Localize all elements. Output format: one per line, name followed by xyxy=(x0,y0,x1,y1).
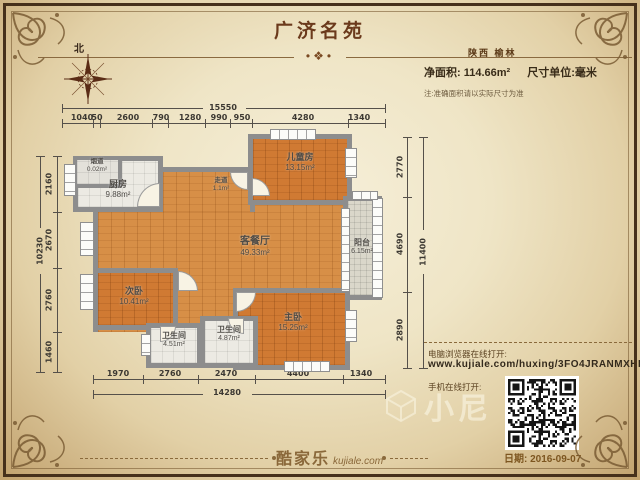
dim-tick xyxy=(198,375,199,384)
footer-dot-icon xyxy=(382,456,386,460)
dim-label: 2760 xyxy=(159,369,181,378)
dim-tick xyxy=(255,375,256,384)
dim-line xyxy=(40,156,41,228)
dim-label: 2470 xyxy=(215,369,237,378)
room-name: 儿童房 xyxy=(266,152,334,163)
dim-line xyxy=(423,137,424,230)
dim-line xyxy=(62,108,203,109)
watermark-logo-icon xyxy=(384,389,418,423)
dim-label: 1340 xyxy=(350,369,372,378)
corner-ornament-icon xyxy=(10,10,76,76)
room-name: 卫生间 xyxy=(203,325,255,335)
room-name: 烟道 xyxy=(74,158,120,166)
label-corridor: 走道 1.1m² xyxy=(202,177,240,193)
dim-line xyxy=(423,274,424,368)
dim-tick xyxy=(403,292,412,293)
dim-tick xyxy=(62,104,63,113)
dim-label: 990 xyxy=(211,113,228,122)
room-area: 6.15m² xyxy=(344,248,380,256)
dim-label: 4690 xyxy=(396,233,405,255)
dim-total-top: 15550 xyxy=(209,103,237,112)
dim-tick xyxy=(143,375,144,384)
dim-line xyxy=(57,156,58,372)
dim-label: 2670 xyxy=(45,229,54,251)
dim-tick xyxy=(205,119,206,128)
dim-total-left: 10230 xyxy=(36,237,45,265)
dim-tick xyxy=(403,197,412,198)
dim-line xyxy=(40,274,41,372)
footer-divider xyxy=(390,458,428,459)
area-note: 注:准确面积请以实际尺寸为准 xyxy=(424,88,524,99)
brand-logo: 酷家乐 kujiale.com xyxy=(276,445,383,469)
label-bath1: 卫生间 4.51m² xyxy=(150,331,198,349)
links-divider xyxy=(424,342,632,343)
dim-total-bottom: 14280 xyxy=(213,388,241,397)
dim-tick xyxy=(403,137,412,138)
divider-ornament-icon: •❖• xyxy=(294,49,346,63)
dim-line xyxy=(246,108,385,109)
dim-tick xyxy=(385,104,386,113)
page-title: 广济名苑 xyxy=(210,16,430,43)
room-area: 13.15m² xyxy=(266,163,334,173)
window-living-left xyxy=(80,222,94,256)
label-bath2: 卫生间 4.87m² xyxy=(203,325,255,343)
window-balcony-top xyxy=(352,191,378,200)
room-area: 9.88m² xyxy=(86,190,150,200)
dim-label: 2890 xyxy=(396,319,405,341)
label-kids: 儿童房 13.15m² xyxy=(266,152,334,172)
room-name: 主卧 xyxy=(260,312,326,323)
dim-label: 2160 xyxy=(45,173,54,195)
dim-tick xyxy=(343,375,344,384)
dim-label: 50 xyxy=(91,113,102,122)
room-name: 阳台 xyxy=(344,238,380,248)
room-name: 卫生间 xyxy=(150,331,198,341)
dim-total-right: 11400 xyxy=(419,238,428,266)
room-area: 0.02m² xyxy=(74,166,120,174)
window-master-bottom xyxy=(284,361,330,372)
dim-label: 1340 xyxy=(348,113,370,122)
dim-tick xyxy=(419,368,428,369)
dim-label: 1460 xyxy=(45,341,54,363)
room-area: 4.51m² xyxy=(150,341,198,349)
dim-label: 1280 xyxy=(179,113,201,122)
label-balcony: 阳台 6.15m² xyxy=(344,238,380,256)
dim-label: 2600 xyxy=(117,113,139,122)
dim-tick xyxy=(385,390,386,399)
dim-label: 2770 xyxy=(396,156,405,178)
dim-tick xyxy=(36,156,45,157)
dim-tick xyxy=(230,119,231,128)
net-area-value: 净面积: 114.66m² xyxy=(424,67,510,79)
dim-label: 950 xyxy=(234,113,251,122)
label-kitchen: 厨房 9.88m² xyxy=(86,179,150,199)
window-master-right xyxy=(345,310,357,342)
dim-line xyxy=(62,123,385,124)
dim-tick xyxy=(252,119,253,128)
corner-ornament-icon xyxy=(10,404,76,470)
dim-label: 790 xyxy=(153,113,170,122)
mobile-open-label: 手机在线打开: xyxy=(428,381,481,393)
label-flue: 烟道 0.02m² xyxy=(74,158,120,174)
room-area: 49.33m² xyxy=(216,248,294,258)
dim-tick xyxy=(385,375,386,384)
dim-tick xyxy=(419,137,428,138)
dim-label: 4280 xyxy=(292,113,314,122)
room-area: 15.25m² xyxy=(260,323,326,333)
dim-tick xyxy=(93,390,94,399)
dim-label: 1970 xyxy=(107,369,129,378)
floorplan-sheet: 广济名苑 •❖• 陕西 榆林 净面积: 114.66m² 尺寸单位:毫米 注:准… xyxy=(0,0,640,480)
dim-line xyxy=(407,137,408,368)
brand-name: 酷家乐 xyxy=(276,445,330,469)
floorplan-url: www.kujiale.com/huxing/3FO4JRANMXHL xyxy=(428,359,640,370)
room-name: 厨房 xyxy=(86,179,150,190)
window-bed2-left xyxy=(80,274,94,310)
room-area: 1.1m² xyxy=(202,185,240,193)
dim-tick xyxy=(93,375,94,384)
corner-ornament-icon xyxy=(564,10,630,76)
dim-tick xyxy=(53,268,62,269)
dim-tick xyxy=(53,156,62,157)
dim-label: 1040 xyxy=(71,113,93,122)
window-kids-top xyxy=(270,129,316,140)
dim-label: 2760 xyxy=(45,289,54,311)
room-name: 次卧 xyxy=(100,286,168,297)
corner-ornament-icon xyxy=(564,404,630,470)
label-bed2: 次卧 10.41m² xyxy=(100,286,168,306)
dim-tick xyxy=(53,212,62,213)
dim-line xyxy=(252,394,385,395)
dim-tick xyxy=(36,372,45,373)
label-master: 主卧 15.25m² xyxy=(260,312,326,332)
dim-tick xyxy=(62,119,63,128)
footer-divider xyxy=(80,458,268,459)
window-kids-right xyxy=(345,148,357,178)
room-name: 客餐厅 xyxy=(216,236,294,248)
dim-tick xyxy=(53,332,62,333)
brand-domain: kujiale.com xyxy=(333,456,383,467)
dim-line xyxy=(93,379,385,380)
dim-tick xyxy=(53,372,62,373)
dim-tick xyxy=(403,368,412,369)
room-name: 走道 xyxy=(202,177,240,185)
room-area: 10.41m² xyxy=(100,297,168,307)
dim-tick xyxy=(385,119,386,128)
dim-line xyxy=(93,394,203,395)
room-area: 4.87m² xyxy=(203,335,255,343)
label-living: 客餐厅 49.33m² xyxy=(216,236,294,258)
